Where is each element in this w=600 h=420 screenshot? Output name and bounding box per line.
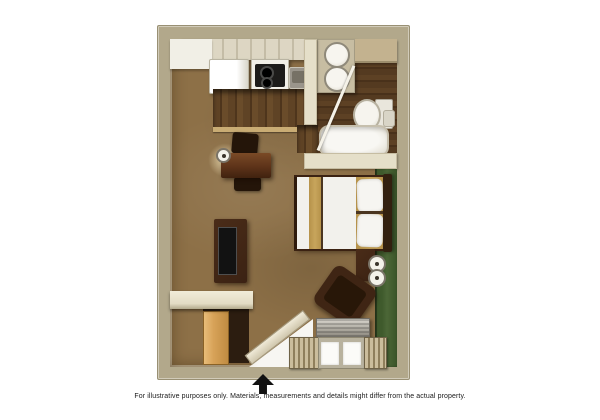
pillow-divider (356, 211, 383, 214)
kitchen-counter (170, 39, 212, 69)
desk-chair (231, 132, 259, 155)
bed-stripe-line (321, 177, 323, 249)
bed-gold-stripe (309, 177, 321, 249)
nightstand-clock (368, 269, 386, 287)
armchair-seat (322, 274, 367, 318)
window-pane (343, 342, 361, 365)
bathroom-sink (324, 42, 350, 68)
bath-towel (383, 110, 395, 127)
stove-burner-icon (261, 77, 273, 89)
curtain-right (364, 337, 387, 369)
disclaimer-caption: For illustrative purposes only. Material… (0, 393, 600, 400)
desk-lamp (216, 148, 231, 163)
bathroom-left-wall (304, 39, 317, 125)
tv (218, 227, 237, 275)
bathroom-shelf (355, 39, 397, 63)
floor-plan-page: For illustrative purposes only. Material… (0, 0, 600, 420)
closet-wall (170, 291, 253, 309)
bathroom-doorway-floor (297, 125, 318, 153)
bed (294, 177, 383, 249)
window (318, 337, 366, 369)
bed-foot-edge (294, 177, 297, 249)
headboard (383, 174, 392, 252)
desk-chair (234, 177, 261, 191)
floor-plan (157, 25, 410, 380)
stove (251, 59, 289, 92)
curtain-left (289, 337, 320, 369)
closet-door (203, 311, 229, 365)
pillow (356, 179, 383, 213)
tv-stand (214, 219, 247, 283)
bathroom-vanity (317, 39, 355, 93)
pillow (356, 214, 383, 248)
bathroom-bottom-wall (304, 153, 397, 169)
room-floor-carpet (170, 39, 397, 367)
window-pane (321, 342, 339, 365)
